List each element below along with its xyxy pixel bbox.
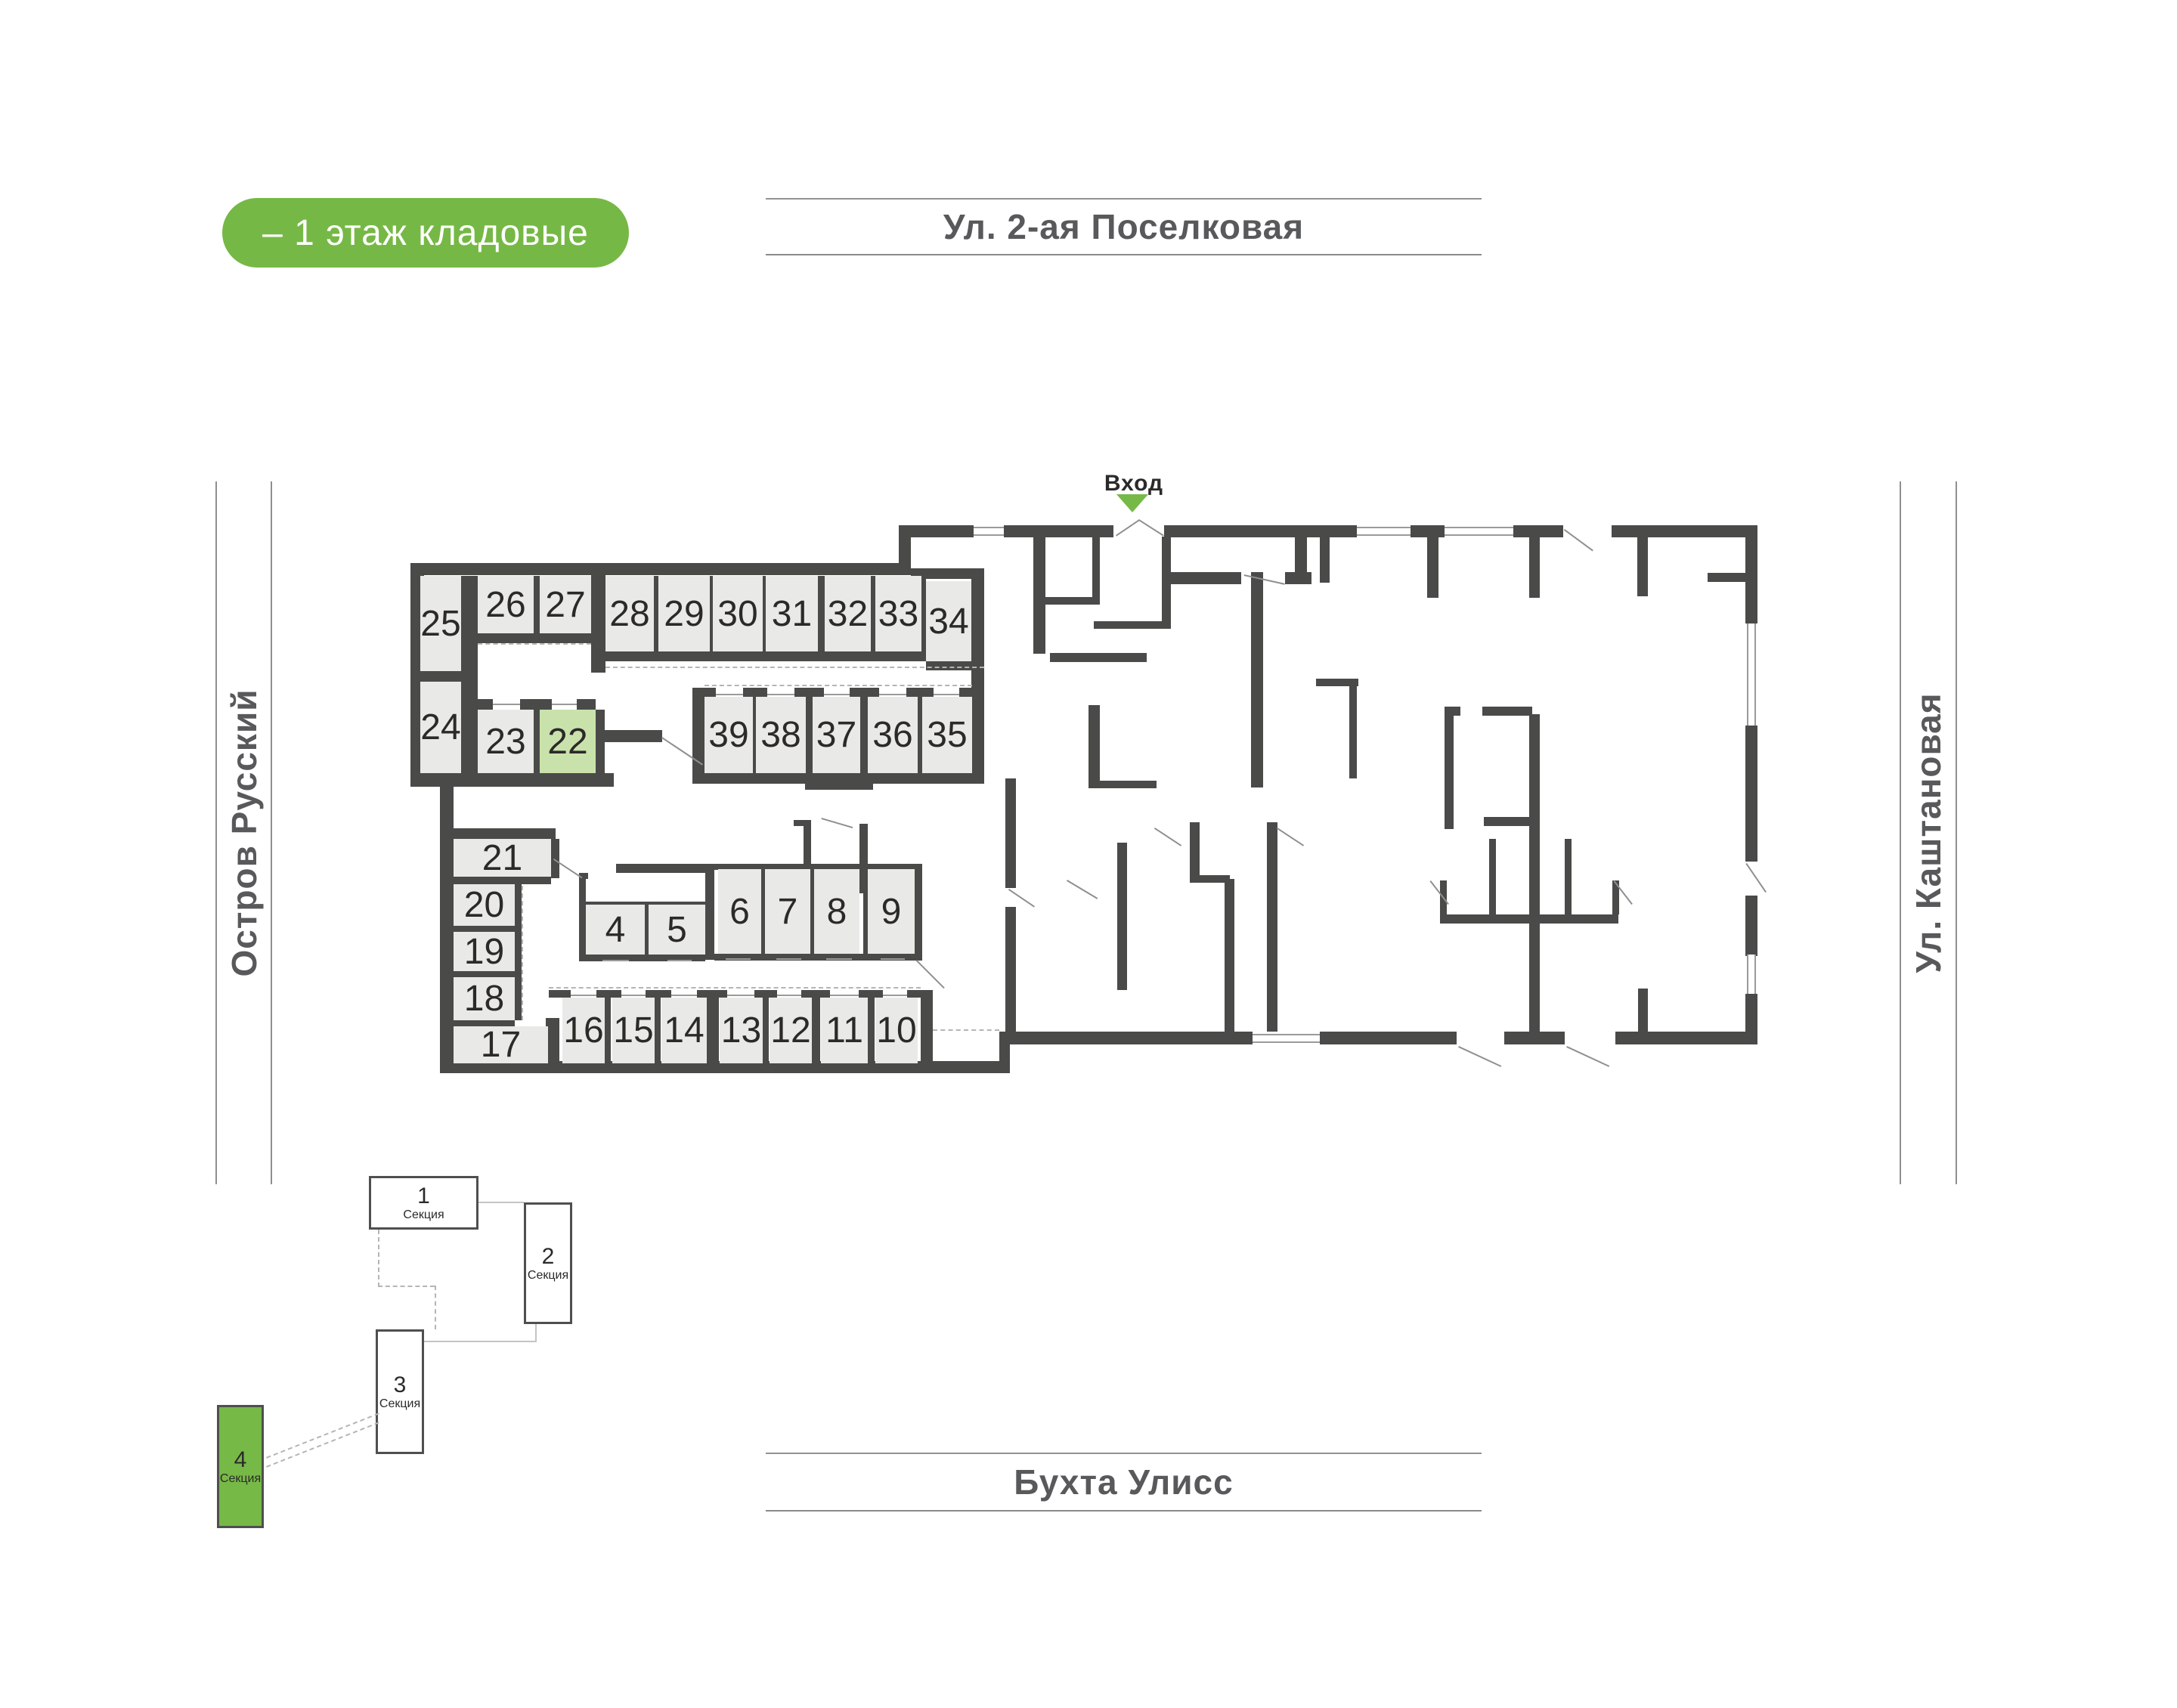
wall-segment — [1190, 822, 1200, 879]
door-gap-line — [621, 995, 646, 996]
street-left-line-inner — [271, 481, 272, 1184]
wall-segment — [605, 730, 662, 742]
wall-segment — [1005, 907, 1016, 1032]
wall-segment — [549, 990, 571, 998]
wall-segment — [705, 688, 716, 697]
door-gap-line — [571, 995, 596, 996]
door-swing — [1244, 574, 1285, 585]
wall-segment — [1117, 843, 1127, 990]
storage-room-39[interactable]: 39 — [705, 697, 753, 773]
entrance-label: Вход — [1104, 471, 1163, 497]
storage-room-number: 7 — [778, 891, 798, 933]
storage-room-number: 23 — [485, 721, 525, 763]
wall-segment — [911, 568, 984, 579]
wall-segment — [577, 699, 596, 710]
storage-room-number: 20 — [464, 884, 504, 926]
wall-segment — [1251, 572, 1263, 787]
wall-segment — [1267, 822, 1277, 1032]
wall-segment — [899, 525, 974, 537]
door-gap-line — [671, 995, 697, 996]
door-gap-line — [667, 960, 692, 961]
street-bottom: Бухта Улисс — [766, 1453, 1482, 1512]
storage-room-7[interactable]: 7 — [765, 869, 810, 954]
wall-segment — [754, 990, 777, 998]
floor-badge: – 1 этаж кладовые — [222, 198, 629, 268]
section-caption: Секция — [379, 1397, 420, 1411]
page: – 1 этаж кладовые Ул. 2-ая Поселковая Бу… — [0, 0, 2177, 1708]
wall-segment — [1529, 537, 1540, 598]
wall-segment — [646, 990, 671, 998]
wall-segment — [591, 563, 605, 673]
storage-room-number: 11 — [825, 1010, 863, 1051]
storage-room-number: 33 — [878, 593, 918, 635]
wall-segment — [1565, 839, 1572, 914]
storage-room-number: 9 — [881, 891, 902, 933]
storage-room-22[interactable]: 22 — [540, 710, 596, 773]
wall-segment — [1637, 537, 1648, 596]
opening-dash — [605, 667, 984, 668]
wall-segment — [605, 651, 926, 661]
storage-room-4[interactable]: 4 — [586, 905, 645, 955]
wall-segment — [579, 875, 586, 960]
storage-room-8[interactable]: 8 — [814, 869, 859, 954]
wall-segment — [1349, 679, 1357, 778]
wall-segment — [959, 688, 972, 697]
wall-segment — [868, 998, 875, 1061]
wall-segment — [1484, 817, 1532, 826]
door-gap-line — [602, 960, 629, 961]
wall-segment — [1295, 527, 1307, 584]
storage-room-20[interactable]: 20 — [454, 884, 515, 926]
door-swing — [916, 960, 945, 989]
wall-segment — [859, 824, 868, 893]
street-left-line-outer — [215, 481, 217, 1184]
street-right-line-outer — [1956, 481, 1957, 1184]
site-section-1[interactable]: 1Секция — [369, 1176, 478, 1230]
storage-room-38[interactable]: 38 — [756, 697, 806, 773]
door-gap-line — [824, 694, 850, 695]
storage-room-10[interactable]: 10 — [875, 998, 918, 1063]
storage-room-number: 31 — [772, 593, 812, 635]
opening-dash — [549, 987, 921, 989]
wall-segment — [596, 710, 605, 773]
wall-segment — [461, 682, 478, 773]
door-swing — [1566, 1046, 1609, 1067]
street-right-label: Ул. Каштановая — [1908, 692, 1949, 973]
wall-segment — [859, 990, 883, 998]
storage-room-number: 5 — [667, 909, 687, 951]
storage-room-number: 38 — [760, 714, 801, 756]
storage-room-number: 6 — [729, 891, 750, 933]
entrance-arrow-icon — [1116, 494, 1148, 512]
door-swing — [1277, 828, 1304, 846]
storage-room-number: 32 — [828, 593, 868, 635]
storage-room-25[interactable]: 25 — [420, 576, 461, 671]
storage-room-number: 39 — [708, 714, 748, 756]
wall-segment — [478, 699, 493, 710]
storage-room-5[interactable]: 5 — [649, 905, 705, 955]
storage-room-35[interactable]: 35 — [922, 697, 972, 773]
wall-segment — [812, 998, 820, 1061]
wall-segment — [1225, 879, 1234, 1032]
wall-segment — [1088, 781, 1157, 788]
storage-room-19[interactable]: 19 — [454, 932, 515, 971]
door-swing — [1458, 1046, 1501, 1067]
wall-segment — [1504, 1032, 1565, 1044]
wall-segment — [410, 563, 911, 575]
door-gap-line — [716, 694, 743, 695]
door-swing — [1154, 828, 1181, 846]
storage-room-21[interactable]: 21 — [454, 839, 551, 877]
storage-room-number: 18 — [464, 978, 504, 1020]
opening-dash — [266, 1413, 379, 1459]
site-section-2[interactable]: 2Секция — [524, 1202, 572, 1324]
storage-room-26[interactable]: 26 — [478, 576, 534, 633]
connector-line — [424, 1341, 537, 1342]
window-marker — [974, 527, 1004, 536]
wall-segment — [534, 710, 540, 773]
door-gap-line — [777, 995, 801, 996]
door-swing — [821, 818, 853, 828]
wall-segment — [478, 633, 597, 643]
wall-segment — [1094, 621, 1169, 629]
section-caption: Секция — [220, 1472, 261, 1486]
wall-segment — [1050, 653, 1147, 662]
connector-line — [535, 1324, 537, 1342]
opening-dash — [378, 1230, 379, 1287]
wall-segment — [860, 697, 868, 773]
wall-segment — [705, 864, 714, 960]
wall-segment — [692, 688, 705, 784]
door-swing — [1138, 519, 1164, 537]
opening-dash — [522, 886, 523, 1020]
wall-segment — [907, 990, 921, 998]
wall-segment — [1033, 537, 1045, 654]
storage-room-number: 37 — [816, 714, 856, 756]
wall-segment — [794, 688, 824, 697]
door-gap-line — [776, 958, 801, 960]
wall-segment — [605, 998, 611, 1061]
wall-segment — [596, 990, 621, 998]
section-number: 1 — [417, 1184, 430, 1208]
wall-segment — [818, 576, 825, 651]
storage-room-number: 21 — [482, 837, 522, 879]
wall-segment — [1513, 525, 1563, 537]
storage-room-28[interactable]: 28 — [605, 576, 654, 651]
wall-segment — [616, 864, 714, 873]
door-gap-line — [830, 995, 859, 996]
opening-dash — [378, 1286, 435, 1287]
wall-segment — [1445, 707, 1460, 716]
storage-room-number: 12 — [770, 1010, 810, 1051]
wall-segment — [1411, 525, 1445, 537]
wall-segment — [921, 990, 933, 1061]
storage-room-6[interactable]: 6 — [718, 869, 761, 954]
wall-segment — [1088, 705, 1100, 788]
site-section-3[interactable]: 3Секция — [376, 1329, 424, 1454]
storage-room-number: 24 — [420, 707, 460, 748]
wall-segment — [515, 884, 522, 1020]
storage-room-23[interactable]: 23 — [478, 710, 534, 773]
storage-room-27[interactable]: 27 — [540, 576, 591, 633]
wall-segment — [1529, 714, 1540, 1032]
storage-room-11[interactable]: 11 — [821, 998, 868, 1063]
door-gap-line — [934, 694, 959, 695]
wall-segment — [1004, 525, 1113, 537]
site-section-4[interactable]: 4Секция — [217, 1405, 264, 1528]
storage-room-37[interactable]: 37 — [813, 697, 860, 773]
floor-badge-label: – 1 этаж кладовые — [262, 212, 589, 254]
window-marker — [1253, 1034, 1320, 1043]
section-number: 3 — [394, 1373, 407, 1397]
wall-segment — [697, 990, 727, 998]
storage-room-number: 35 — [927, 714, 967, 756]
storage-room-14[interactable]: 14 — [661, 998, 707, 1063]
door-gap-line — [881, 958, 905, 960]
door-gap-line — [879, 694, 906, 695]
storage-room-16[interactable]: 16 — [562, 998, 605, 1063]
section-number: 4 — [234, 1448, 247, 1472]
wall-segment — [707, 998, 719, 1061]
wall-segment — [1745, 994, 1757, 1044]
storage-room-number: 30 — [717, 593, 757, 635]
door-swing — [1564, 529, 1593, 552]
storage-room-number: 15 — [613, 1010, 653, 1051]
door-swing — [1116, 519, 1140, 537]
wall-segment — [1440, 914, 1618, 924]
wall-segment — [655, 998, 661, 1061]
wall-segment — [906, 688, 934, 697]
wall-segment — [1482, 707, 1532, 716]
window-marker — [1357, 527, 1411, 536]
window-marker — [1445, 527, 1513, 536]
wall-segment — [1320, 537, 1330, 583]
window-marker — [1747, 955, 1756, 994]
storage-room-number: 4 — [605, 909, 626, 951]
street-top: Ул. 2-ая Поселковая — [766, 198, 1482, 255]
opening-dash — [266, 1422, 379, 1468]
storage-room-32[interactable]: 32 — [825, 576, 871, 651]
wall-segment — [801, 990, 830, 998]
storage-room-30[interactable]: 30 — [713, 576, 763, 651]
wall-segment — [1005, 1032, 1253, 1044]
wall-segment — [850, 688, 879, 697]
storage-room-36[interactable]: 36 — [868, 697, 918, 773]
wall-segment — [1445, 716, 1454, 829]
wall-segment — [1164, 525, 1357, 537]
storage-room-number: 26 — [485, 584, 525, 626]
storage-room-number: 22 — [547, 721, 587, 763]
storage-room-29[interactable]: 29 — [658, 576, 710, 651]
wall-segment — [763, 998, 769, 1061]
wall-segment — [1745, 726, 1757, 862]
wall-segment — [1489, 839, 1496, 914]
street-top-label: Ул. 2-ая Поселковая — [943, 206, 1304, 247]
wall-segment — [806, 697, 813, 773]
opening-dash — [435, 1286, 436, 1329]
storage-room-12[interactable]: 12 — [770, 998, 812, 1063]
wall-segment — [972, 688, 984, 784]
storage-room-number: 14 — [664, 1010, 704, 1051]
storage-room-9[interactable]: 9 — [868, 869, 915, 954]
opening-dash — [705, 685, 972, 686]
wall-segment — [743, 688, 767, 697]
wall-segment — [1320, 1032, 1457, 1044]
door-swing — [1745, 863, 1767, 893]
section-caption: Секция — [528, 1269, 568, 1283]
wall-segment — [410, 671, 478, 682]
door-gap-line — [493, 704, 520, 705]
door-gap-line — [552, 704, 577, 705]
door-swing — [1067, 880, 1098, 899]
storage-room-18[interactable]: 18 — [454, 977, 515, 1020]
storage-room-number: 29 — [664, 593, 704, 635]
wall-segment — [1162, 572, 1241, 584]
street-left-label: Остров Русский — [224, 688, 265, 976]
wall-segment — [1005, 778, 1016, 888]
storage-room-15[interactable]: 15 — [612, 998, 655, 1063]
wall-segment — [461, 576, 478, 671]
wall-segment — [794, 820, 805, 826]
wall-segment — [805, 773, 873, 790]
storage-room-number: 13 — [721, 1010, 761, 1051]
wall-segment — [410, 773, 614, 787]
door-gap-line — [767, 694, 794, 695]
wall-segment — [1708, 573, 1757, 582]
storage-room-number: 19 — [464, 931, 504, 973]
storage-room-31[interactable]: 31 — [766, 576, 818, 651]
street-right-line-inner — [1900, 481, 1901, 1184]
wall-segment — [1033, 597, 1100, 605]
wall-segment — [1612, 525, 1757, 537]
wall-segment — [1427, 537, 1438, 598]
door-gap-line — [726, 958, 751, 960]
storage-room-13[interactable]: 13 — [720, 998, 763, 1063]
storage-room-number: 27 — [545, 584, 585, 626]
door-gap-line — [883, 995, 907, 996]
storage-room-34[interactable]: 34 — [926, 581, 971, 661]
door-gap-line — [727, 995, 754, 996]
storage-room-number: 25 — [420, 603, 460, 645]
wall-segment — [804, 820, 811, 864]
storage-room-number: 10 — [876, 1010, 916, 1051]
wall-segment — [1745, 896, 1757, 956]
door-gap-line — [826, 958, 852, 960]
wall-segment — [1615, 1032, 1757, 1044]
door-swing — [1008, 889, 1035, 908]
storage-room-number: 34 — [928, 601, 968, 642]
connector-line — [478, 1202, 524, 1203]
wall-segment — [520, 699, 552, 710]
storage-room-number: 36 — [872, 714, 912, 756]
wall-segment — [915, 864, 922, 961]
storage-room-24[interactable]: 24 — [420, 682, 461, 773]
section-number: 2 — [542, 1245, 555, 1269]
storage-room-number: 28 — [609, 593, 649, 635]
wall-segment — [1638, 989, 1648, 1032]
street-bottom-label: Бухта Улисс — [1014, 1462, 1233, 1502]
storage-room-33[interactable]: 33 — [875, 576, 921, 651]
wall-segment — [971, 568, 984, 688]
storage-room-number: 16 — [563, 1010, 603, 1051]
wall-segment — [534, 576, 540, 633]
wall-segment — [1092, 537, 1100, 605]
storage-room-number: 8 — [827, 891, 847, 933]
opening-dash — [933, 1029, 999, 1031]
storage-room-17[interactable]: 17 — [454, 1026, 548, 1063]
storage-room-number: 17 — [481, 1024, 521, 1066]
window-marker — [1747, 623, 1756, 726]
section-caption: Секция — [403, 1208, 444, 1222]
opening-dash — [478, 643, 591, 645]
